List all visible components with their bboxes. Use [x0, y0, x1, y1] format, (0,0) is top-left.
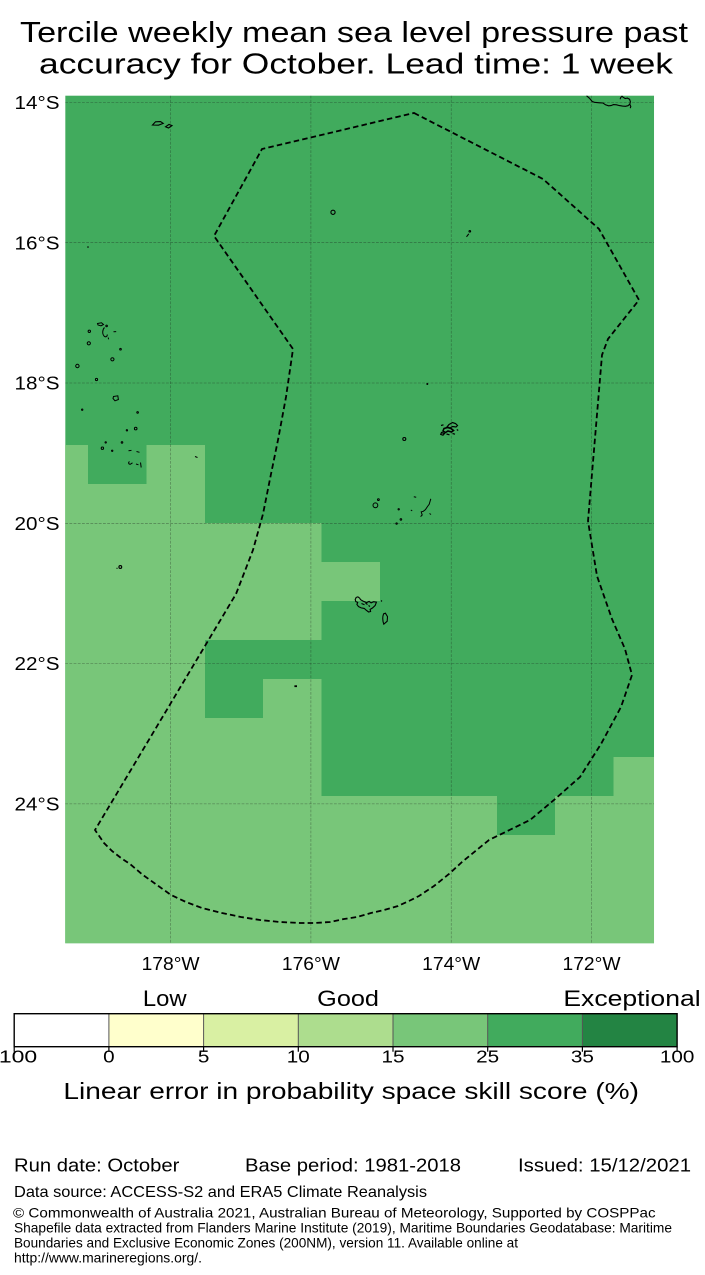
- svg-text:174°W: 174°W: [422, 953, 481, 974]
- svg-text:14°S: 14°S: [15, 92, 60, 113]
- svg-text:Linear error in probability sp: Linear error in probability space skill …: [63, 1078, 639, 1104]
- svg-text:Low: Low: [143, 986, 187, 1011]
- svg-text:0: 0: [103, 1047, 115, 1067]
- svg-text:-100: -100: [0, 1047, 38, 1067]
- svg-text:18°S: 18°S: [15, 373, 60, 394]
- svg-text:176°W: 176°W: [282, 953, 341, 974]
- svg-text:100: 100: [660, 1047, 695, 1067]
- svg-text:Issued: 15/12/2021: Issued: 15/12/2021: [518, 1156, 691, 1176]
- svg-text:20°S: 20°S: [15, 513, 60, 534]
- svg-text:Tercile weekly mean sea level: Tercile weekly mean sea level pressure p…: [20, 17, 688, 49]
- svg-text:22°S: 22°S: [15, 653, 60, 674]
- svg-text:Good: Good: [317, 986, 379, 1011]
- svg-text:5: 5: [198, 1047, 210, 1067]
- svg-text:Data source: ACCESS-S2 and ERA: Data source: ACCESS-S2 and ERA5 Climate …: [14, 1184, 427, 1201]
- svg-text:Shapefile data extracted from: Shapefile data extracted from Flanders M…: [14, 1220, 672, 1236]
- svg-text:Boundaries and Exclusive Econo: Boundaries and Exclusive Economic Zones …: [14, 1235, 518, 1251]
- svg-text:172°W: 172°W: [563, 953, 622, 974]
- svg-text:35: 35: [571, 1047, 594, 1067]
- svg-text:Base period: 1981-2018: Base period: 1981-2018: [245, 1156, 461, 1176]
- svg-text:http://www.marineregions.org/.: http://www.marineregions.org/.: [14, 1250, 202, 1266]
- svg-text:© Commonwealth of Australia 20: © Commonwealth of Australia 2021, Austra…: [13, 1205, 656, 1221]
- svg-text:24°S: 24°S: [15, 794, 60, 815]
- svg-text:accuracy for October. Lead tim: accuracy for October. Lead time: 1 week: [39, 49, 674, 81]
- svg-text:15: 15: [382, 1047, 405, 1067]
- svg-text:10: 10: [287, 1047, 310, 1067]
- svg-text:Exceptional: Exceptional: [563, 986, 700, 1011]
- svg-text:Run date: October: Run date: October: [14, 1156, 179, 1176]
- svg-text:25: 25: [476, 1047, 499, 1067]
- svg-text:178°W: 178°W: [142, 953, 201, 974]
- svg-text:16°S: 16°S: [15, 232, 60, 253]
